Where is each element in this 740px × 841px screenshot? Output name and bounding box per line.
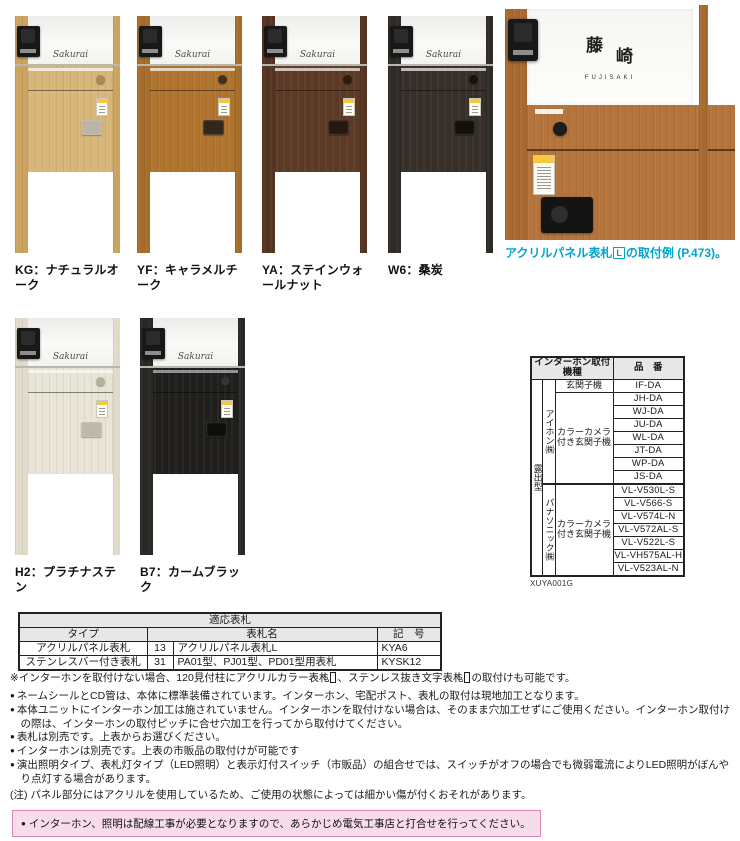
model-number: IF-DA [613,379,684,392]
camera-icon [21,331,35,345]
color-label-kg: KG：ナチュラルオーク [15,263,127,293]
table-row: アクリルパネル表札 13 アクリルパネル表札L KYA6 [19,642,441,656]
intercom-icon [142,328,165,359]
plate-table-title: 適応表札 [19,613,441,628]
warning-sticker-icon [96,400,108,418]
signature-text: Sakurai [150,50,235,60]
plate-code: KYSK12 [377,656,441,671]
latch-icon [81,120,102,135]
intercom-table-section: インターホン取付機種 品 番 露出型 アイホン㈱ 玄関子機 IF-DA カラーカ… [530,356,683,588]
model-number: JU-DA [613,418,684,431]
plate-num: 13 [147,642,173,656]
mail-slot [275,68,360,71]
mail-slot [150,68,235,71]
mount-type-cell: 露出型 [531,379,542,576]
warning-sticker-icon [221,400,233,418]
intercom-icon [264,26,287,57]
call-button-icon [469,75,478,84]
signature-text: Sakurai [28,50,113,60]
panel-divider [150,90,235,91]
section-label: 玄関子機 [555,379,613,392]
latch-icon [203,120,224,135]
wood-body [28,368,113,474]
wood-body [275,66,360,172]
speaker-icon [20,49,36,53]
intercom-unit-icon [541,197,593,233]
camera-icon [143,29,157,43]
bullet-note: 表札は別売です。上表からお選びください。 [10,731,736,745]
product-swatch-yf: Sakurai YF：キャラメルチーク [137,10,249,293]
camera-icon [514,23,532,42]
plate-name: PA01型、PJ01型、PD01型用表札 [173,656,377,671]
product-photo-yf: Sakurai [137,10,242,253]
speaker-icon [20,351,36,355]
plate-num: 31 [147,656,173,671]
boxed-l-icon: L [613,247,625,259]
call-button-icon [343,75,352,84]
panel-divider [153,392,238,393]
model-number: VL-V574L-N [613,510,684,523]
model-number: VL-V522L-S [613,536,684,549]
section-label: カラーカメラ付き玄関子機 [555,392,613,484]
wood-pillar [360,16,367,253]
nameplate-kanji: 藤崎 [527,31,693,71]
product-photo-b7: Sakurai [140,312,245,555]
bullet-note: 演出照明タイプ、表札灯タイプ（LED照明）と表示灯付スイッチ（市販品）の組合せで… [10,759,736,787]
caption-link[interactable]: アクリルパネル表札Lの取付例 (P.473)。 [505,244,737,261]
latch-icon [206,422,227,437]
latch-icon [81,422,102,437]
col-code: 記 号 [377,628,441,642]
wood-body [150,66,235,172]
mail-slot [535,109,563,114]
panel-divider [28,392,113,393]
plate-type: アクリルパネル表札 [19,642,147,656]
acrylic-nameplate-panel: 藤崎 FUJISAKI [527,9,693,105]
camera-icon [268,29,282,43]
latch-icon [454,120,475,135]
nameplate-panel: Sakurai [28,16,113,65]
intercom-icon [390,26,413,57]
color-label-b7: B7：カームブラック [140,565,252,595]
model-number: JS-DA [613,470,684,484]
col-name: 表札名 [147,628,377,642]
product-photo-h2: Sakurai [15,312,120,555]
catalog-page: Sakurai KG：ナチュラルオーク Sakurai [0,0,740,841]
maker-panasonic-cell: パナソニック㈱ [542,484,555,576]
intercom-table-col-model: 品 番 [613,357,684,379]
warning-sticker-icon [469,98,481,116]
col-type: タイプ [19,628,147,642]
product-swatch-kg: Sakurai KG：ナチュラルオーク [15,10,127,293]
camera-icon [21,29,35,43]
model-number: VL-V566-S [613,497,684,510]
latch-icon [328,120,349,135]
product-swatch-w6: Sakurai W6：桑炭 [388,10,500,278]
model-number: WJ-DA [613,405,684,418]
bullet-notes: ネームシールとCD管は、本体に標準装備されています。インターホン、宅配ポスト、表… [10,690,736,787]
speaker-icon [145,351,161,355]
wood-pillar [113,16,120,253]
section-label: カラーカメラ付き玄関子機 [555,484,613,576]
wood-body [153,368,238,474]
model-number: WP-DA [613,457,684,470]
speaker-icon [393,49,409,53]
caution-note: (注) パネル部分にはアクリルを使用しているため、ご使用の状態によっては細かい傷… [10,789,736,803]
boxed-s-icon: S [464,672,470,683]
plate-type: ステンレスバー付き表札 [19,656,147,671]
speaker-icon [142,49,158,53]
camera-icon [394,29,408,43]
nameplate-panel: Sakurai [28,318,113,367]
wood-pillar [699,5,708,240]
call-button-icon [553,122,567,136]
speaker-icon [513,50,533,55]
bullet-note: インターホンは別売です。上表の市販品の取付けが可能です [10,745,736,759]
nameplate-panel: Sakurai [275,16,360,65]
plate-table: 適応表札 タイプ 表札名 記 号 アクリルパネル表札 13 アクリルパネル表札L… [18,612,442,671]
warning-sticker-icon [96,98,108,116]
intercom-table-title: インターホン取付機種 [531,357,613,379]
panel-divider [401,90,486,91]
model-number: VL-VH575AL-H [613,549,684,562]
mail-slot [28,68,113,71]
model-number: WL-DA [613,431,684,444]
wood-pillar [235,16,242,253]
bullet-note: 本体ユニットにインターホン加工は施されていません。インターホンを取付けない場合は… [10,704,736,732]
panel-divider [275,90,360,91]
speaker-icon [267,49,283,53]
plate-name: アクリルパネル表札L [173,642,377,656]
model-number: VL-V530L-S [613,484,684,498]
camera-icon [146,331,160,345]
signature-text: Sakurai [275,50,360,60]
call-button-icon [218,75,227,84]
nameplate-panel: Sakurai [150,16,235,65]
intercom-icon [17,328,40,359]
product-swatch-b7: Sakurai B7：カームブラック [140,312,252,595]
wood-body [401,66,486,172]
color-label-yf: YF：キャラメルチーク [137,263,249,293]
mail-slot [401,68,486,71]
bullet-note: ネームシールとCD管は、本体に標準装備されています。インターホン、宅配ポスト、表… [10,690,736,704]
electric-work-warning: インターホン、照明は配線工事が必要となりますので、あらかじめ電気工事店と打合せを… [12,810,541,837]
intercom-icon [17,26,40,57]
warning-sticker-icon [533,155,555,195]
mail-slot [153,370,238,373]
product-photo-kg: Sakurai [15,10,120,253]
mail-slot [28,370,113,373]
warning-sticker-icon [343,98,355,116]
wood-pillar [238,318,245,555]
signature-text: Sakurai [28,352,113,362]
color-label-h2: H2：プラチナステン [15,565,127,595]
wood-body [28,66,113,172]
call-button-icon [221,377,230,386]
intercom-table: インターホン取付機種 品 番 露出型 アイホン㈱ 玄関子機 IF-DA カラーカ… [530,356,685,577]
warning-sticker-icon [218,98,230,116]
model-number: JT-DA [613,444,684,457]
nameplate-roman: FUJISAKI [527,75,693,81]
color-label-w6: W6：桑炭 [388,263,500,278]
table-row: ステンレスバー付き表札 31 PA01型、PJ01型、PD01型用表札 KYSK… [19,656,441,671]
panel-divider [28,90,113,91]
featured-photo: 藤崎 FUJISAKI [505,5,735,240]
product-swatch-ya: Sakurai YA：ステインウォールナット [262,10,374,293]
product-photo-w6: Sakurai [388,10,493,253]
model-number: VL-V523AL-N [613,562,684,576]
boxed-s-icon: S [330,672,336,683]
plate-code: KYA6 [377,642,441,656]
intercom-icon [139,26,162,57]
nameplate-panel: Sakurai [153,318,238,367]
intercom-icon [508,19,538,61]
asterisk-note: ※インターホンを取付けない場合、120見付柱にアクリルカラー表札S、ステンレス抜… [10,672,736,686]
nameplate-panel: Sakurai [401,16,486,65]
signature-text: Sakurai [153,352,238,362]
plate-table-section: 適応表札 タイプ 表札名 記 号 アクリルパネル表札 13 アクリルパネル表札L… [18,612,440,671]
model-number: VL-V572AL-S [613,523,684,536]
table-code: XUYA001G [530,579,683,588]
notes-section: ※インターホンを取付けない場合、120見付柱にアクリルカラー表札S、ステンレス抜… [10,672,736,805]
product-swatch-h2: Sakurai H2：プラチナステン [15,312,127,595]
product-photo-ya: Sakurai [262,10,367,253]
maker-aiphone-cell: アイホン㈱ [542,379,555,484]
wood-pillar [486,16,493,253]
call-button-icon [96,75,105,84]
signature-text: Sakurai [401,50,486,60]
model-number: JH-DA [613,392,684,405]
call-button-icon [96,377,105,386]
featured-product: 藤崎 FUJISAKI アクリルパネル表札Lの取付例 (P.473)。 [505,5,737,261]
wood-pillar [113,318,120,555]
color-label-ya: YA：ステインウォールナット [262,263,374,293]
